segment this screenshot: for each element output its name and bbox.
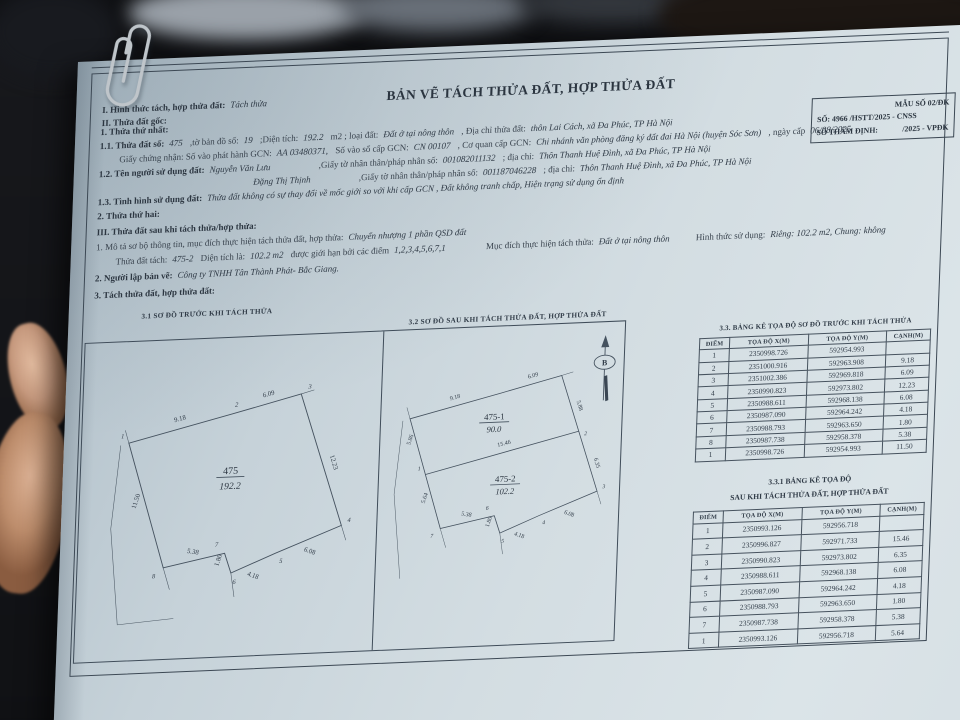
drawer-label: 2. Người lập bản vẽ: (95, 270, 173, 283)
car-interior-blur (338, 0, 533, 32)
landtype-label: m2 ; loại đất: (330, 129, 378, 141)
caption-diagram-before: 3.1 SƠ ĐỒ TRƯỚC KHI TÁCH THỬA (141, 307, 272, 321)
split-purpose-value: Đất ở tại nông thôn (599, 233, 670, 246)
edge-length-label: 15.46 (497, 440, 511, 449)
coordinate-cell: 4.18 (877, 577, 921, 594)
second-parcel-label: 2. Thửa thứ hai: (97, 209, 160, 222)
coords-table-before: ĐIỂMTỌA ĐỘ X(M)TỌA ĐỘ Y(M)CẠNH(M) 123509… (695, 329, 931, 463)
status-label: 1.3. Tình hình sử dụng đất: (98, 193, 203, 207)
photo-scene: I. Hình thức tách, hợp thửa đất:Tách thử… (0, 0, 960, 720)
coordinate-cell: 1 (695, 448, 725, 462)
edge-length-label: 6.08 (303, 546, 317, 557)
coordinate-cell: 1 (688, 632, 719, 649)
parcel-number: 475 (223, 466, 238, 478)
parcel-area: 192.2 (219, 482, 241, 493)
mapsheet-value: 19 (244, 135, 253, 145)
landuser-label: 1.2. Tên người sử dụng đất: (99, 165, 205, 179)
landuser-name-2: Đặng Thị Thịnh (253, 174, 311, 186)
section-i-value: Tách thửa (230, 98, 267, 110)
neighbor-boundary (107, 445, 124, 625)
address-value: thôn Lai Cách, xã Đa Phúc, TP Hà Nội (531, 117, 673, 133)
edge-length-label: 9.18 (174, 414, 188, 424)
edge-length-label: 6.35 (592, 457, 601, 469)
coordinate-tables-column: 3.3. BẢNG KÊ TỌA ĐỘ SƠ ĐỒ TRƯỚC KHI TÁCH… (688, 315, 932, 649)
split-area-label: Diện tích là: (200, 251, 245, 263)
coordinate-cell: 4 (691, 569, 722, 586)
gcn-date-value: 06/08/2025 (810, 124, 851, 136)
split-section-label: 3. Tách thửa đất, hợp thửa đất: (94, 285, 215, 300)
vertex-label: 4 (347, 517, 351, 524)
document-paper: I. Hình thức tách, hợp thửa đất:Tách thử… (50, 23, 960, 720)
coords-table-after: ĐIỂMTỌA ĐỘ X(M)TỌA ĐỘ Y(M)CẠNH(M) 123509… (688, 502, 925, 649)
vertex-label: 7 (215, 542, 219, 549)
edge-length-label: 5.88 (575, 400, 584, 412)
landuser-name-1: Nguyễn Văn Lưu (209, 162, 270, 175)
split-parcel-value: 475-2 (172, 253, 193, 264)
parcel-number: 475-1 (484, 411, 505, 422)
parcel-no-label: 1.1. Thửa đất số: (100, 138, 165, 151)
north-arrow-head (601, 335, 609, 347)
edge-length-label: 6.08 (563, 510, 575, 519)
addr-label: ; địa chỉ: (543, 163, 575, 174)
section-iii-label: III. Thửa đất sau khi tách thửa/hợp thửa… (97, 221, 257, 238)
vertex-label: 1 (418, 466, 421, 472)
coordinate-cell: 2350993.126 (718, 629, 797, 648)
parcel-diagram-after: 475-1 90.0 475-2 102.2 9.18 6.09 5.88 6.… (373, 321, 624, 648)
gcn-book-label: Số vào sổ cấp GCN: (335, 142, 409, 155)
vertex-label: 3 (601, 484, 605, 490)
area-value: 192.2 (303, 132, 324, 143)
id-label: ,Giấy tờ nhân thân/pháp nhân số: (359, 167, 479, 182)
id-label: ,Giấy tờ nhân thân/pháp nhân số: (319, 155, 439, 170)
vertex-label: 2 (584, 431, 587, 437)
vertex-label: 2 (235, 402, 239, 409)
edge-length-label: 12.23 (328, 454, 339, 471)
edge-length-label: 11.50 (131, 493, 143, 510)
vertex-label: 4 (542, 519, 545, 526)
coordinate-cell: 592954.993 (804, 441, 883, 457)
vertex-label: 1 (121, 433, 124, 440)
parcel-area: 102.2 (495, 487, 514, 497)
vertex-label: 5 (501, 539, 504, 545)
form-border-box: I. Hình thức tách, hợp thửa đất:Tách thử… (69, 38, 948, 677)
north-label: B (602, 358, 608, 367)
id-value-2: 001187046228 (483, 165, 537, 177)
edge-length-label: 5.64 (421, 492, 430, 504)
parcel-number: 475-2 (495, 473, 516, 484)
vertex-label: 5 (279, 558, 283, 565)
coordinate-cell: 1 (692, 522, 723, 539)
north-arrow: B (593, 335, 616, 402)
coordinate-cell: 5.38 (876, 608, 920, 625)
edge-length-label: 4.18 (513, 531, 525, 540)
use-form-label: Hình thức sử dụng: (696, 229, 766, 242)
coordinate-cell: 11.50 (882, 439, 926, 453)
diagram-before-cell: 475 192.2 9.18 6.09 12.23 6.08 4.18 1.80… (74, 331, 384, 662)
edge-length-label: 5.38 (186, 548, 200, 557)
vertex-label: 6 (486, 506, 489, 512)
split-parcel-label: Thửa đất tách: (115, 254, 167, 266)
coordinate-cell: 2 (692, 538, 723, 555)
split-line (426, 431, 579, 474)
vertex-label: 7 (430, 534, 434, 540)
split-purpose-label: Mục đích thực hiện tách thửa: (486, 237, 594, 252)
vertex-label: 6 (232, 579, 236, 586)
drawer-value: Công ty TNHH Tân Thành Phát- Bắc Giang. (177, 263, 339, 280)
coordinate-cell: 5.64 (875, 623, 919, 640)
coordinate-cell: 1.80 (877, 592, 921, 609)
coordinate-cell: 3 (691, 554, 722, 571)
gcn-issue-value: AA 03480371, (277, 146, 329, 158)
id-value-1: 001082011132 (443, 153, 496, 165)
edge-length-label: 4.18 (246, 571, 260, 582)
document-title: BẢN VẼ TÁCH THỬA ĐẤT, HỢP THỬA ĐẤT (346, 74, 716, 106)
gcn-book-value: CN 00107 (414, 140, 451, 152)
coordinate-cell: 5 (690, 585, 721, 602)
edge-length-label: 5.86 (406, 434, 415, 446)
coordinate-cell: 592956.718 (797, 625, 876, 644)
table-after-title: 3.3.1 BẢNG KÊ TỌA ĐỘ SAU KHI TÁCH THỬA Đ… (693, 468, 926, 507)
area-label: ;Diện tích: (260, 133, 299, 145)
parcel-no-value: 475 (169, 138, 183, 149)
gcn-agency-label: , Cơ quan cấp GCN: (458, 137, 532, 150)
edge-length-label: 5.38 (460, 511, 472, 519)
edge-length-label: 6.09 (262, 389, 276, 399)
coordinate-cell: 2350998.726 (725, 445, 804, 461)
first-parcel-label: 1. Thửa thứ nhất: (100, 124, 168, 137)
mapsheet-label: ,tờ bản đồ số: (190, 135, 239, 147)
neighbor-boundary (391, 421, 406, 579)
coordinate-cell (879, 514, 923, 531)
vertex-label: 3 (307, 383, 312, 390)
paperclip-wire (105, 22, 152, 108)
coordinate-cell: 15.46 (879, 530, 923, 547)
use-form-value: Riêng: 102.2 m2, Chung: không (770, 224, 886, 239)
coordinate-cell: 6.35 (878, 545, 922, 562)
coordinate-cell: 7 (689, 616, 720, 633)
split-points-value: 1,2,3,4,5,6,7,1 (394, 243, 446, 255)
vertex-label: 8 (152, 573, 156, 580)
coordinate-cell: 6 (690, 601, 721, 618)
diagrams-box: 475 192.2 9.18 6.09 12.23 6.08 4.18 1.80… (73, 320, 626, 663)
gcn-date-label: , ngày cấp (768, 126, 805, 138)
description-value: Chuyển nhượng 1 phần QSD đất (348, 227, 466, 242)
split-points-label: được giới hạn bởi các điểm (291, 245, 390, 259)
address-label: , Địa chỉ thửa đất: (461, 123, 526, 136)
addr-label: ; địa chỉ: (503, 151, 535, 162)
diagram-after-cell: 475-1 90.0 475-2 102.2 9.18 6.09 5.88 6.… (373, 321, 624, 650)
parcel-diagram-before: 475 192.2 9.18 6.09 12.23 6.08 4.18 1.80… (74, 331, 383, 660)
edge-length-label: 9.18 (449, 394, 460, 403)
split-area-value: 102.2 m2 (250, 250, 284, 261)
edge-length-label: 6.09 (528, 372, 539, 381)
landtype-value: Đất ở tại nông thôn (383, 126, 454, 139)
parcel-area: 90.0 (486, 425, 502, 435)
